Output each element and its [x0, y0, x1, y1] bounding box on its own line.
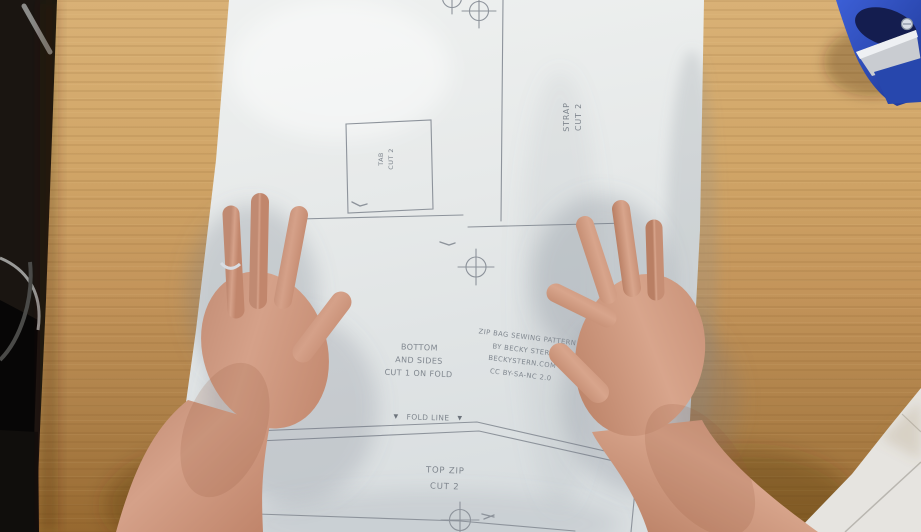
hands-layer	[0, 0, 921, 532]
right-pinky-finger	[654, 228, 656, 292]
photo-frame: TAB CUT 2 STRAP CUT 2 BOTTOM AND SIDES C…	[0, 0, 921, 532]
right-middle-finger	[585, 225, 608, 295]
left-ring-finger	[231, 214, 236, 310]
right-ring-finger	[621, 209, 632, 288]
right-hand	[556, 209, 818, 532]
left-hand	[116, 202, 349, 532]
left-middle-finger	[258, 202, 260, 300]
left-index-finger	[283, 215, 299, 300]
